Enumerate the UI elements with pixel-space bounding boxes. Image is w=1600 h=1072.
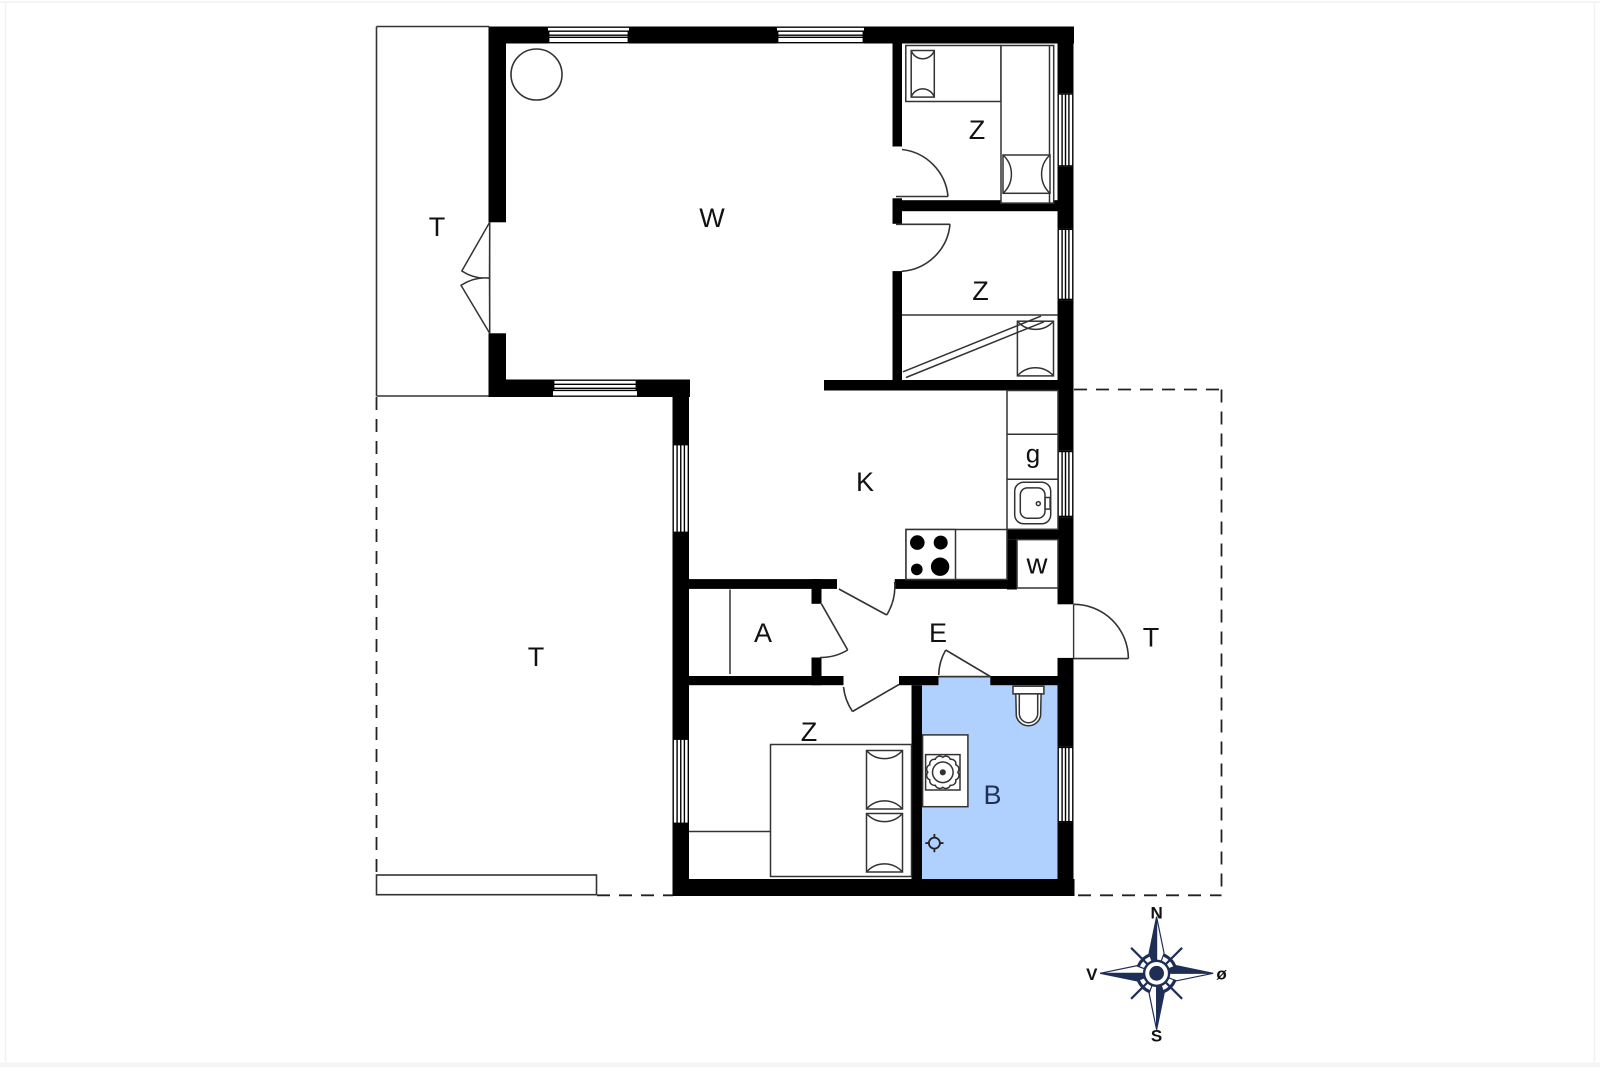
svg-text:Z: Z xyxy=(801,717,818,747)
svg-text:Z: Z xyxy=(972,276,989,306)
svg-text:ø: ø xyxy=(1216,964,1227,983)
svg-text:N: N xyxy=(1150,903,1162,922)
svg-text:B: B xyxy=(983,780,1001,810)
svg-text:g: g xyxy=(1026,439,1040,469)
svg-text:T: T xyxy=(429,212,446,242)
svg-text:T: T xyxy=(528,642,545,672)
svg-text:A: A xyxy=(754,618,772,648)
svg-text:S: S xyxy=(1151,1026,1162,1045)
svg-text:w: w xyxy=(1026,549,1049,581)
svg-text:W: W xyxy=(699,203,725,233)
svg-text:Z: Z xyxy=(969,115,986,145)
svg-text:T: T xyxy=(1143,623,1160,653)
svg-text:E: E xyxy=(929,618,947,648)
svg-text:K: K xyxy=(856,467,874,497)
svg-text:V: V xyxy=(1086,965,1098,984)
